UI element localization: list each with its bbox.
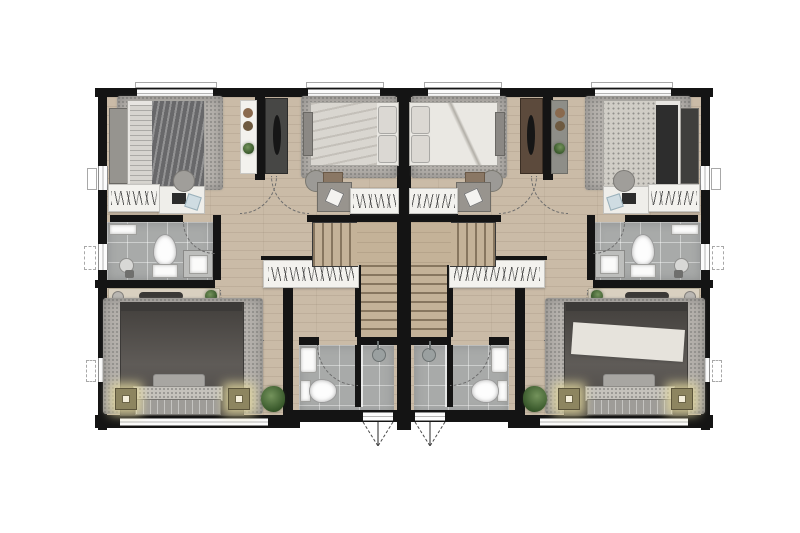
- stool-a: [613, 170, 635, 192]
- clothes-rack-a: [108, 184, 160, 212]
- bed-b-duvet: [311, 103, 377, 165]
- nightstand-lamp: [115, 388, 137, 410]
- toilet-tank: [152, 264, 178, 278]
- paper-icon: [464, 188, 484, 208]
- desk-b: [317, 182, 352, 212]
- bowl-icon: [555, 121, 565, 131]
- casement-symbol: [84, 246, 96, 270]
- shower-pipe-icon: [429, 341, 431, 350]
- cabinet-handle-icon: [273, 115, 281, 155]
- unit-left: [95, 88, 404, 430]
- toilet: [153, 234, 177, 266]
- bed-b-pillow: [411, 135, 430, 163]
- casement-symbol: [711, 168, 721, 190]
- wall-bath-bottom: [593, 280, 713, 288]
- tall-cabinet: [520, 98, 543, 174]
- bath-accessory-icon: [674, 270, 683, 278]
- paper-icon: [325, 188, 345, 208]
- hangers-icon: [454, 267, 541, 282]
- shower-head-icon: [372, 348, 386, 362]
- bath-shelf: [671, 224, 699, 235]
- toilet: [471, 379, 499, 403]
- console-cabinet: [240, 100, 257, 174]
- window-sill: [591, 82, 673, 88]
- window-master-bottom: [120, 418, 268, 426]
- stairs-upper-flight: [450, 222, 496, 267]
- master-footboard: [566, 302, 688, 311]
- shower-glass: [445, 345, 447, 407]
- wall-stairs-top: [307, 215, 398, 222]
- bed-b-pillow: [411, 106, 430, 134]
- stool-a: [173, 170, 195, 192]
- sink-basin: [600, 255, 619, 274]
- sink-vanity: [183, 250, 213, 278]
- shower-head-icon: [422, 348, 436, 362]
- paper-icon: [184, 193, 202, 211]
- nightstand-lamp: [228, 388, 250, 410]
- window-side-bath: [98, 244, 108, 270]
- hangers-icon: [268, 267, 355, 282]
- unit-right: [404, 88, 713, 430]
- stairs-lower-flight: [361, 265, 397, 337]
- bed-b-bench: [303, 112, 313, 156]
- shower-glass: [361, 345, 363, 407]
- bath2-sink: [300, 347, 317, 373]
- window-sill: [424, 82, 502, 88]
- window-side-bedroom: [700, 166, 710, 190]
- master-bed: [566, 302, 688, 414]
- plant-icon: [554, 143, 565, 154]
- tall-cabinet: [265, 98, 288, 174]
- plant-large: [523, 386, 547, 412]
- bed-a-headboard: [679, 108, 699, 184]
- clothes-rack-a: [648, 184, 700, 212]
- window-bath2-bottom: [363, 412, 393, 421]
- casement-symbol: [712, 360, 722, 382]
- floor-plan-canvas: [0, 0, 800, 533]
- plant-icon: [243, 143, 254, 154]
- sink-vanity: [595, 250, 625, 278]
- casement-open-symbol: [361, 422, 395, 448]
- window-side-bedroom: [98, 166, 108, 190]
- laptop-icon: [172, 193, 186, 204]
- window-side-bath: [700, 244, 710, 270]
- bed-b: [310, 102, 399, 166]
- stairs-lower-flight: [411, 265, 447, 337]
- desk-b: [456, 182, 491, 212]
- bed-a-pillows: [130, 105, 152, 189]
- laptop-icon: [622, 193, 636, 204]
- window-sill: [135, 82, 217, 88]
- bowl-icon: [243, 121, 253, 131]
- window-master-bottom: [540, 418, 688, 426]
- bed-a-pillows: [656, 105, 678, 189]
- hangers-icon: [651, 191, 697, 206]
- bowl-icon: [555, 108, 565, 118]
- nightstand-lamp: [558, 388, 580, 410]
- front-pillows: [587, 399, 673, 415]
- casement-symbol: [712, 246, 724, 270]
- bed-a-headboard: [109, 108, 129, 184]
- window-sill: [306, 82, 384, 88]
- wall-bath-top: [110, 215, 183, 222]
- wall-bath2-top-a: [299, 337, 319, 345]
- master-bed: [120, 302, 242, 414]
- wall-stairs-top: [410, 215, 501, 222]
- bath-accessory-icon: [125, 270, 134, 278]
- plant-large: [261, 386, 285, 412]
- bed-b-pillow: [378, 106, 397, 134]
- wall-bath2-top-a: [489, 337, 509, 345]
- nightstand-lamp: [671, 388, 693, 410]
- wardrobe-bedroom-b: [409, 188, 458, 214]
- casement-symbol: [86, 360, 96, 382]
- bed-b: [409, 102, 498, 166]
- casement-symbol: [87, 168, 97, 190]
- bath2-sink: [491, 347, 508, 373]
- bed-b-duvet: [431, 103, 497, 165]
- toilet-tank: [630, 264, 656, 278]
- bed-b-pillow: [378, 135, 397, 163]
- console-cabinet: [551, 100, 568, 174]
- front-pillows: [135, 399, 221, 415]
- toilet: [631, 234, 655, 266]
- sink-basin: [189, 255, 208, 274]
- wall-bath-bottom: [95, 280, 215, 288]
- stairs-landing: [357, 222, 397, 265]
- hangers-icon: [412, 194, 455, 207]
- stairs-landing: [411, 222, 451, 265]
- master-footboard: [120, 302, 242, 311]
- cabinet-handle-icon: [527, 115, 535, 155]
- wall-bath-top: [625, 215, 698, 222]
- bath-shelf: [109, 224, 137, 235]
- hangers-icon: [111, 191, 157, 206]
- wardrobe-bedroom-b: [350, 188, 399, 214]
- hangers-icon: [353, 194, 396, 207]
- bowl-icon: [243, 108, 253, 118]
- bed-b-bench: [495, 112, 505, 156]
- window-bath2-bottom: [415, 412, 445, 421]
- stairs-upper-flight: [312, 222, 358, 267]
- casement-open-symbol: [413, 422, 447, 448]
- shower-pipe-icon: [377, 341, 379, 350]
